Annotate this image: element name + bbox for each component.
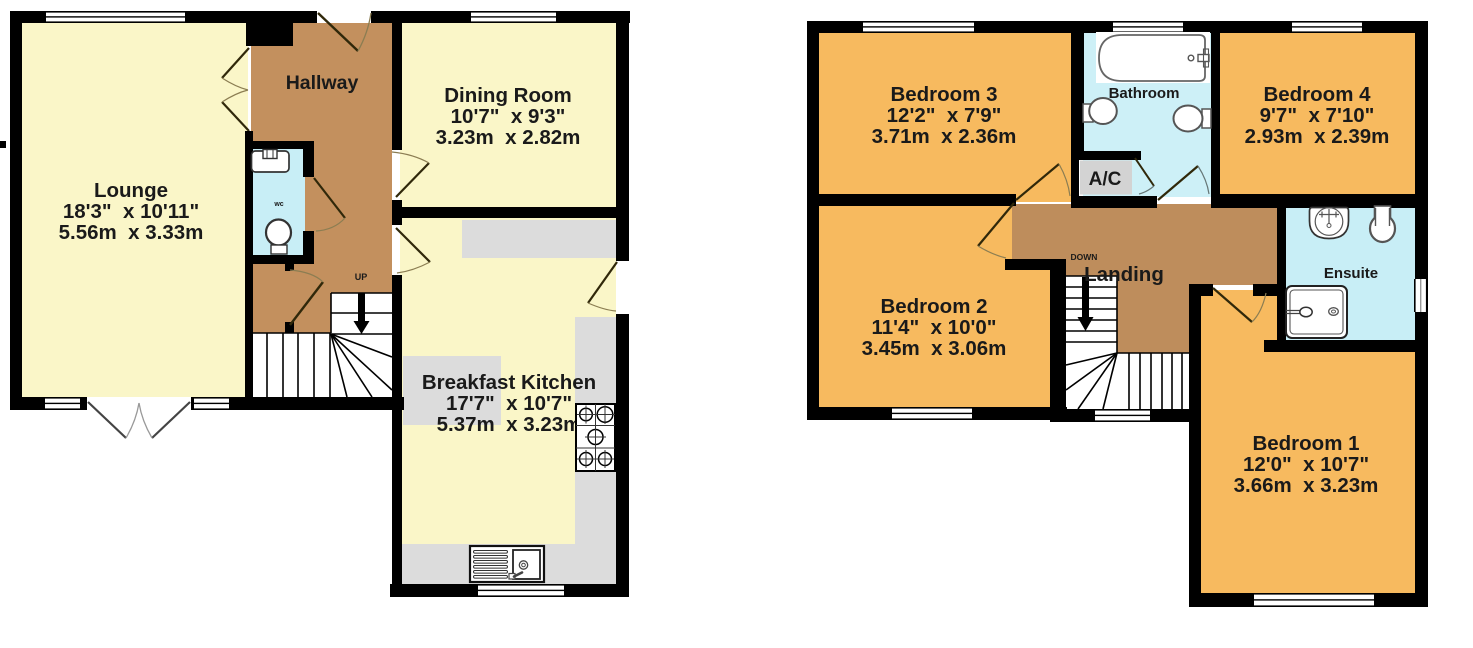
svg-text:Bathroom: Bathroom bbox=[1109, 85, 1180, 102]
svg-text:2.93m x 2.39m: 2.93m x 2.39m bbox=[1245, 125, 1390, 148]
svg-text:UP: UP bbox=[355, 272, 368, 282]
svg-text:17'7" x 10'7": 17'7" x 10'7" bbox=[446, 392, 572, 415]
svg-text:9'7" x 7'10": 9'7" x 7'10" bbox=[1260, 104, 1375, 127]
svg-text:Breakfast Kitchen: Breakfast Kitchen bbox=[422, 371, 596, 394]
svg-text:3.23m x 2.82m: 3.23m x 2.82m bbox=[436, 126, 581, 149]
svg-text:DOWN: DOWN bbox=[1071, 252, 1098, 262]
svg-text:Bedroom 1: Bedroom 1 bbox=[1252, 432, 1359, 455]
svg-text:12'0" x 10'7": 12'0" x 10'7" bbox=[1243, 453, 1369, 476]
svg-text:3.66m x 3.23m: 3.66m x 3.23m bbox=[1234, 474, 1379, 497]
svg-text:3.71m x 2.36m: 3.71m x 2.36m bbox=[872, 125, 1017, 148]
svg-text:Bedroom 2: Bedroom 2 bbox=[880, 295, 987, 318]
svg-text:Ensuite: Ensuite bbox=[1324, 265, 1378, 282]
svg-text:11'4" x 10'0": 11'4" x 10'0" bbox=[872, 316, 997, 339]
svg-text:Landing: Landing bbox=[1084, 263, 1164, 286]
svg-text:Dining Room: Dining Room bbox=[444, 84, 572, 107]
svg-text:Hallway: Hallway bbox=[286, 72, 359, 94]
svg-text:18'3" x 10'11": 18'3" x 10'11" bbox=[63, 200, 199, 223]
svg-text:3.45m x 3.06m: 3.45m x 3.06m bbox=[862, 337, 1007, 360]
svg-text:A/C: A/C bbox=[1089, 169, 1122, 190]
svg-text:Bedroom 4: Bedroom 4 bbox=[1263, 83, 1371, 106]
svg-text:5.56m x 3.33m: 5.56m x 3.33m bbox=[59, 221, 204, 244]
svg-text:Lounge: Lounge bbox=[94, 179, 168, 202]
svg-text:Bedroom 3: Bedroom 3 bbox=[890, 83, 997, 106]
svg-text:12'2" x 7'9": 12'2" x 7'9" bbox=[887, 104, 1002, 127]
svg-text:wc: wc bbox=[273, 201, 283, 208]
svg-text:10'7" x 9'3": 10'7" x 9'3" bbox=[451, 105, 566, 128]
svg-text:5.37m x 3.23m: 5.37m x 3.23m bbox=[437, 413, 582, 436]
